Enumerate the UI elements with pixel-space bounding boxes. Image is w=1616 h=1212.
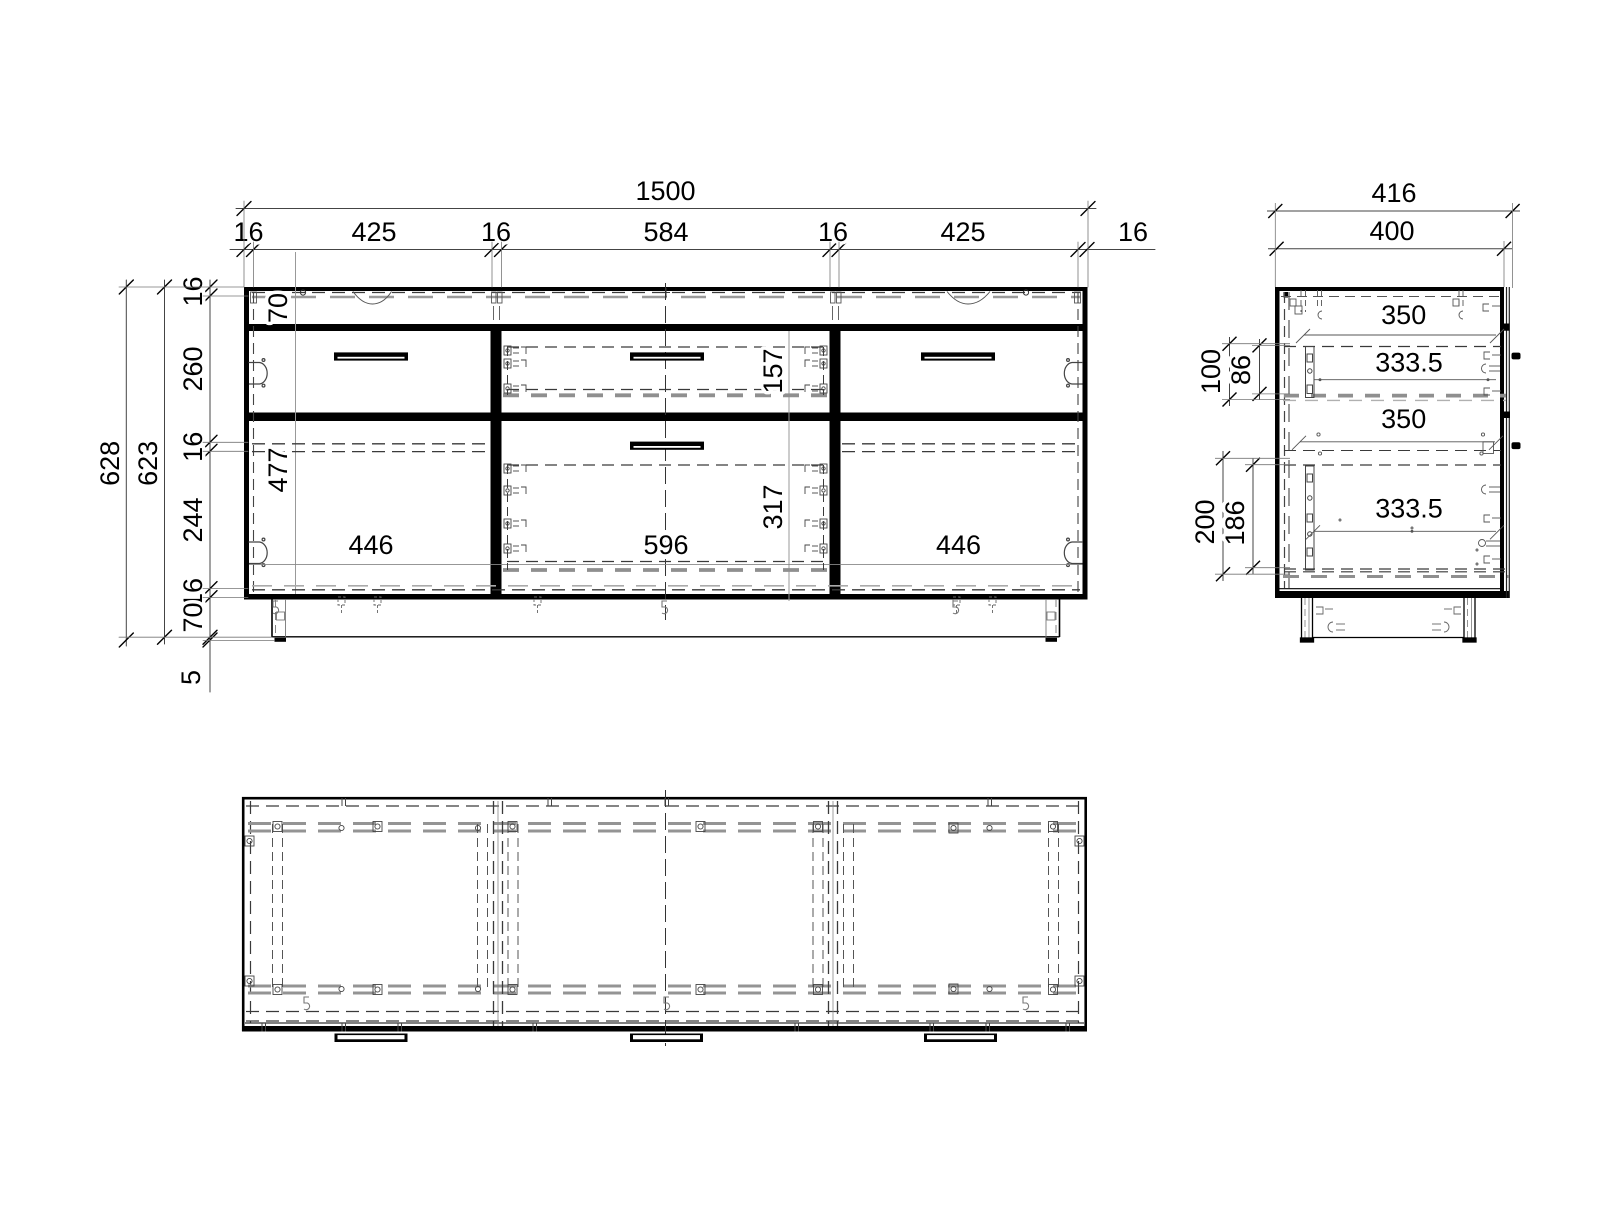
svg-text:1500: 1500 <box>635 176 695 206</box>
svg-text:16: 16 <box>178 432 208 462</box>
svg-text:596: 596 <box>643 530 688 560</box>
svg-text:260: 260 <box>178 346 208 391</box>
svg-text:16: 16 <box>1118 217 1148 247</box>
svg-text:333.5: 333.5 <box>1375 348 1443 378</box>
svg-text:350: 350 <box>1381 404 1426 434</box>
svg-text:350: 350 <box>1381 300 1426 330</box>
svg-text:16: 16 <box>178 276 208 306</box>
svg-text:333.5: 333.5 <box>1375 494 1443 524</box>
svg-text:70: 70 <box>178 602 208 632</box>
svg-text:5: 5 <box>176 670 206 685</box>
svg-text:416: 416 <box>1371 178 1416 208</box>
svg-text:100: 100 <box>1196 349 1226 394</box>
svg-text:186: 186 <box>1220 500 1250 545</box>
svg-text:425: 425 <box>940 217 985 247</box>
svg-text:16: 16 <box>233 217 263 247</box>
svg-text:200: 200 <box>1190 499 1220 544</box>
svg-text:317: 317 <box>758 484 788 529</box>
svg-text:400: 400 <box>1369 216 1414 246</box>
svg-text:446: 446 <box>348 530 393 560</box>
svg-text:425: 425 <box>351 217 396 247</box>
svg-text:446: 446 <box>936 530 981 560</box>
svg-text:70: 70 <box>263 293 293 323</box>
svg-text:628: 628 <box>95 441 125 486</box>
svg-text:584: 584 <box>643 217 688 247</box>
svg-text:623: 623 <box>133 441 163 486</box>
svg-text:244: 244 <box>178 497 208 542</box>
svg-text:157: 157 <box>758 348 788 393</box>
svg-text:86: 86 <box>1226 355 1256 385</box>
svg-text:477: 477 <box>263 447 293 492</box>
svg-text:16: 16 <box>481 217 511 247</box>
svg-text:16: 16 <box>818 217 848 247</box>
